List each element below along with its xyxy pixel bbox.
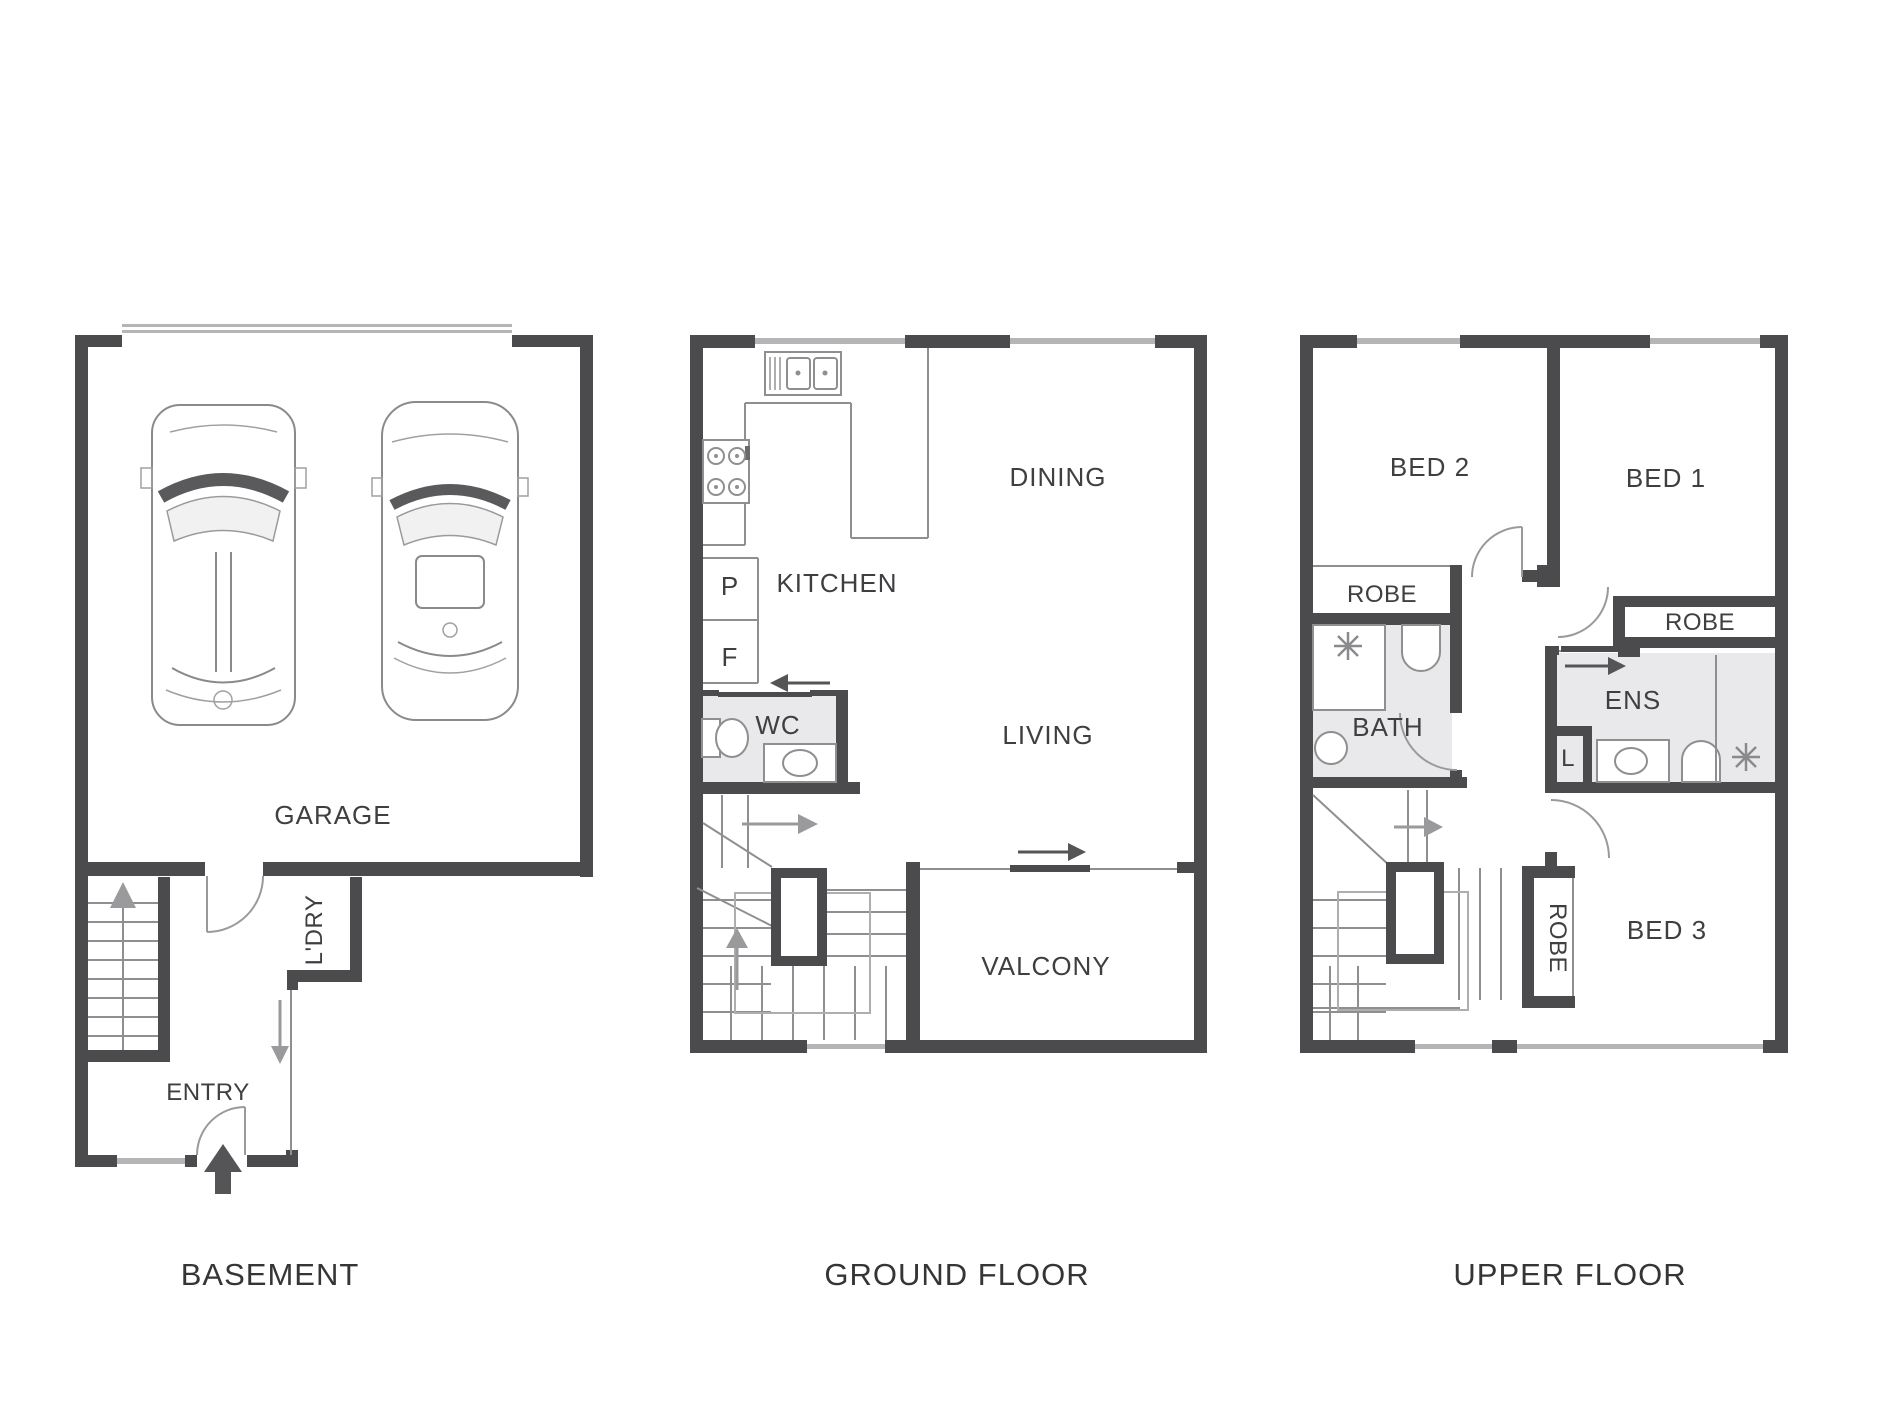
garage-label: GARAGE <box>274 800 391 830</box>
wc-label: WC <box>755 710 800 740</box>
stair-up-arrow-icon <box>726 928 748 990</box>
bed2-door-arc <box>1472 527 1522 577</box>
ens-basin <box>1597 740 1669 782</box>
stair-up-arrow-icon <box>110 882 136 908</box>
bath-toilet <box>1402 625 1440 671</box>
balcony-label: VALCONY <box>981 951 1110 981</box>
kitchen-label: KITCHEN <box>776 568 897 598</box>
stair-right-arrow-icon <box>742 814 818 834</box>
fridge-label: F <box>722 642 739 672</box>
linen-label: L <box>1561 745 1575 772</box>
shower-icon <box>1334 632 1362 660</box>
ground-floor-stairs <box>697 795 906 1040</box>
kitchen-stove <box>703 440 750 503</box>
robe-bed1-label: ROBE <box>1665 609 1735 636</box>
upper-floor-caption: UPPER FLOOR <box>1453 1257 1686 1292</box>
balcony-slider <box>920 865 1177 872</box>
robe-bed2-label: ROBE <box>1347 581 1417 608</box>
basement-caption: BASEMENT <box>181 1257 360 1292</box>
ens-slider <box>1559 646 1618 652</box>
stair-right-arrow-icon <box>1394 817 1443 837</box>
floor-plan-page: GARAGE L'DRY ENTRY <box>0 0 1900 1425</box>
garage-door <box>122 324 512 333</box>
garage-door-arc <box>207 876 263 932</box>
upper-floor-plan: BED 2 BED 1 ROBE ROBE BATH ENS L ROBE BE… <box>1300 335 1788 1053</box>
laundry-label: L'DRY <box>301 895 328 966</box>
bath-shower <box>1313 625 1385 710</box>
ens-label: ENS <box>1605 685 1661 715</box>
shower-icon <box>1732 743 1760 771</box>
bed1-label: BED 1 <box>1626 463 1706 493</box>
dining-label: DINING <box>1010 462 1107 492</box>
floor-plan-drawing: GARAGE L'DRY ENTRY <box>0 0 1900 1425</box>
entry-window <box>117 1158 185 1164</box>
basement-stairs <box>88 882 158 1050</box>
ens-toilet <box>1682 741 1720 782</box>
balcony-arrow-icon <box>1018 843 1086 861</box>
ground-floor-caption: GROUND FLOOR <box>824 1257 1089 1292</box>
bed3-label: BED 3 <box>1627 915 1707 945</box>
car-sedan <box>372 402 528 720</box>
living-label: LIVING <box>1002 720 1093 750</box>
ground-floor-plan: KITCHEN DINING LIVING P F WC VALCONY <box>690 335 1207 1053</box>
basement-plan: GARAGE L'DRY ENTRY <box>75 324 593 1194</box>
wc-entry-arrow-icon <box>770 674 830 692</box>
entry-arrow-icon <box>204 1144 242 1194</box>
upper-floor-stairs <box>1313 790 1501 1040</box>
kitchen-sink <box>765 352 841 395</box>
bed2-label: BED 2 <box>1390 452 1470 482</box>
wc-sliding-door <box>718 692 812 697</box>
bath-basin <box>1315 732 1347 764</box>
down-arrow-icon <box>271 1000 289 1064</box>
bath-label: BATH <box>1352 712 1423 742</box>
bed1-door-arc <box>1558 587 1608 637</box>
car-suv <box>141 405 306 725</box>
bed3-door-arc <box>1551 800 1609 858</box>
pantry-label: P <box>721 571 739 601</box>
robe-bed3-label: ROBE <box>1544 903 1571 973</box>
entry-label: ENTRY <box>166 1079 249 1106</box>
